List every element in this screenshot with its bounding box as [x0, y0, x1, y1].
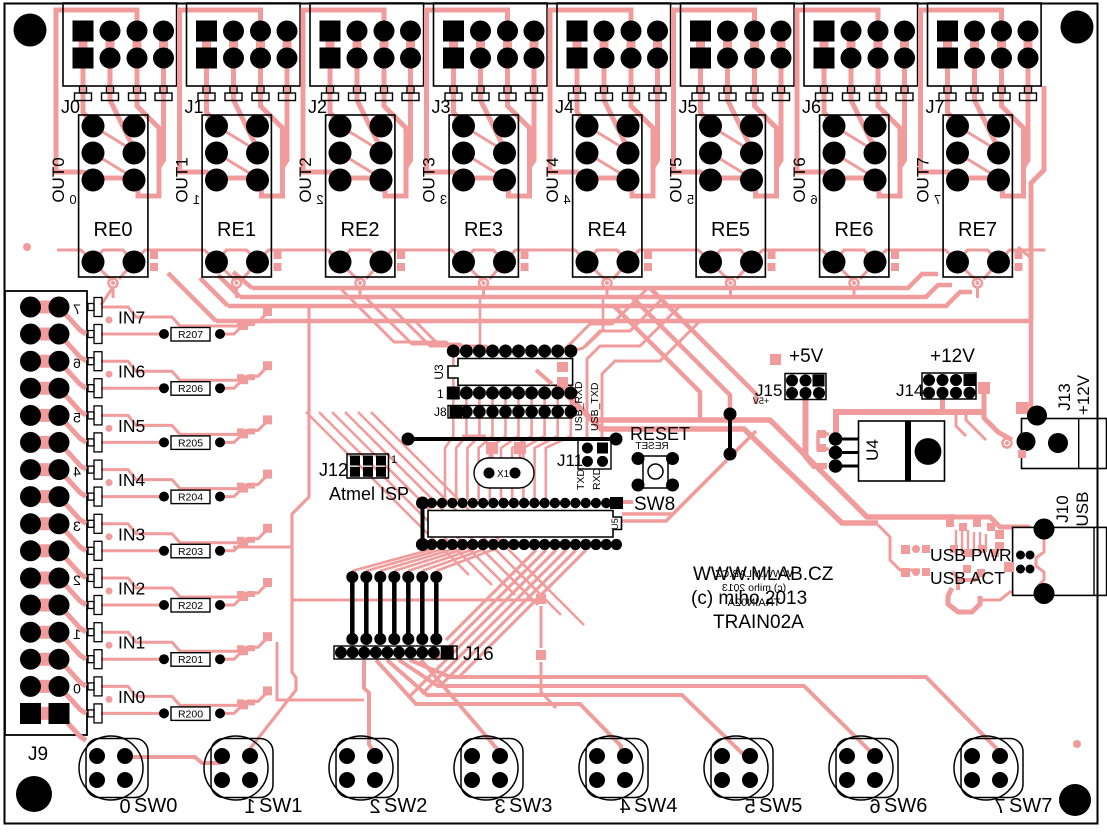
- svg-text:J12: J12: [319, 460, 348, 480]
- svg-text:1: 1: [437, 387, 444, 401]
- svg-text:1: 1: [73, 626, 81, 642]
- svg-text:OUT7: OUT7: [914, 157, 933, 202]
- svg-text:IN0: IN0: [118, 687, 146, 707]
- svg-text:2: 2: [73, 572, 81, 588]
- svg-text:IN1: IN1: [118, 633, 145, 653]
- svg-text:WWW.MLAB.CZ: WWW.MLAB.CZ: [693, 564, 834, 585]
- svg-text:J7: J7: [926, 97, 945, 117]
- svg-text:SW1: SW1: [259, 795, 302, 817]
- svg-text:5: 5: [687, 192, 694, 207]
- svg-text:SW2: SW2: [384, 795, 427, 817]
- svg-text:OUT2: OUT2: [296, 157, 315, 202]
- svg-text:R205: R205: [178, 437, 203, 449]
- svg-text:RE6: RE6: [835, 219, 874, 241]
- svg-text:3: 3: [440, 192, 447, 207]
- svg-text:(c) miho 2013: (c) miho 2013: [691, 588, 807, 609]
- svg-text:R206: R206: [178, 383, 203, 395]
- svg-text:OUT3: OUT3: [420, 157, 439, 202]
- svg-text:OUT5: OUT5: [667, 157, 686, 202]
- svg-text:OUT6: OUT6: [790, 157, 809, 202]
- svg-text:J4: J4: [555, 97, 574, 117]
- svg-text:0: 0: [119, 796, 130, 818]
- svg-text:2: 2: [316, 192, 323, 207]
- svg-text:RE2: RE2: [341, 219, 380, 241]
- svg-text:J8: J8: [434, 405, 447, 419]
- svg-text:IN6: IN6: [118, 362, 145, 382]
- svg-text:1: 1: [193, 192, 200, 207]
- svg-text:SW7: SW7: [1009, 795, 1052, 817]
- svg-text:6: 6: [73, 355, 81, 371]
- svg-text:SW3: SW3: [509, 795, 552, 817]
- svg-text:+12V: +12V: [930, 346, 975, 367]
- svg-text:TRAIN02A: TRAIN02A: [713, 612, 804, 633]
- svg-text:TXD: TXD: [575, 469, 587, 490]
- svg-text:3: 3: [494, 796, 505, 818]
- svg-text:USB PWR: USB PWR: [930, 545, 1012, 565]
- svg-text:X1: X1: [497, 469, 510, 480]
- svg-text:J1: J1: [185, 97, 204, 117]
- svg-text:RESET: RESET: [635, 441, 668, 452]
- svg-text:SW5: SW5: [759, 795, 802, 817]
- svg-text:+5V: +5V: [789, 346, 824, 367]
- svg-text:4: 4: [73, 464, 81, 480]
- svg-text:5: 5: [744, 796, 755, 818]
- svg-text:RE1: RE1: [217, 219, 256, 241]
- svg-text:RE4: RE4: [588, 219, 627, 241]
- svg-text:RE3: RE3: [464, 219, 503, 241]
- svg-text:J10: J10: [1053, 495, 1072, 522]
- svg-text:USB: USB: [1073, 492, 1092, 527]
- svg-text:R203: R203: [178, 546, 203, 558]
- svg-text:7: 7: [73, 301, 81, 317]
- svg-text:J2: J2: [308, 97, 327, 117]
- svg-text:J14: J14: [896, 381, 923, 400]
- svg-text:USB_TXD: USB_TXD: [589, 382, 601, 431]
- svg-text:IN3: IN3: [118, 524, 145, 544]
- svg-text:1: 1: [244, 796, 255, 818]
- svg-text:J13: J13: [1055, 383, 1074, 410]
- svg-text:5: 5: [73, 409, 81, 425]
- svg-text:7: 7: [934, 192, 941, 207]
- svg-text:J6: J6: [802, 97, 821, 117]
- svg-text:4: 4: [563, 192, 570, 207]
- svg-text:RXD: RXD: [591, 467, 603, 490]
- svg-text:RE5: RE5: [711, 219, 750, 241]
- svg-text:USB_RXD: USB_RXD: [573, 381, 585, 431]
- svg-text:0: 0: [69, 192, 76, 207]
- svg-text:R207: R207: [178, 329, 203, 341]
- svg-text:OUT4: OUT4: [543, 157, 562, 202]
- svg-text:U3: U3: [432, 364, 446, 380]
- svg-text:RE7: RE7: [958, 219, 997, 241]
- svg-text:6: 6: [810, 192, 817, 207]
- svg-text:J11: J11: [557, 451, 583, 470]
- svg-text:7: 7: [994, 796, 1005, 818]
- svg-text:RE0: RE0: [94, 219, 133, 241]
- svg-text:IN4: IN4: [118, 470, 146, 490]
- svg-text:SW8: SW8: [634, 494, 675, 515]
- svg-text:SW6: SW6: [884, 795, 927, 817]
- svg-text:0: 0: [73, 680, 81, 696]
- svg-text:R202: R202: [178, 600, 203, 612]
- svg-text:IN5: IN5: [118, 416, 145, 436]
- svg-text:OUT1: OUT1: [173, 157, 192, 202]
- svg-text:R201: R201: [178, 654, 203, 666]
- svg-text:IN7: IN7: [118, 308, 145, 328]
- svg-text:R204: R204: [178, 492, 203, 504]
- svg-text:1: 1: [391, 454, 397, 466]
- svg-text:J5: J5: [679, 97, 698, 117]
- svg-text:OUT0: OUT0: [49, 157, 68, 202]
- svg-text:J0: J0: [61, 97, 80, 117]
- svg-text:SW4: SW4: [634, 795, 677, 817]
- svg-text:U4: U4: [863, 439, 882, 461]
- svg-text:+5V: +5V: [753, 396, 769, 406]
- svg-text:6: 6: [869, 796, 880, 818]
- svg-text:4: 4: [619, 796, 630, 818]
- svg-text:J3: J3: [432, 97, 451, 117]
- svg-text:2: 2: [369, 796, 380, 818]
- svg-text:USB ACT: USB ACT: [930, 568, 1005, 588]
- svg-text:U5: U5: [610, 518, 620, 530]
- svg-text:SW0: SW0: [134, 795, 177, 817]
- svg-text:3: 3: [73, 518, 81, 534]
- svg-text:J9: J9: [28, 744, 48, 765]
- svg-text:R200: R200: [178, 708, 203, 720]
- svg-text:+12V: +12V: [1074, 374, 1093, 415]
- svg-text:J16: J16: [463, 644, 494, 665]
- svg-text:Atmel ISP: Atmel ISP: [329, 484, 409, 504]
- svg-text:IN2: IN2: [118, 579, 145, 599]
